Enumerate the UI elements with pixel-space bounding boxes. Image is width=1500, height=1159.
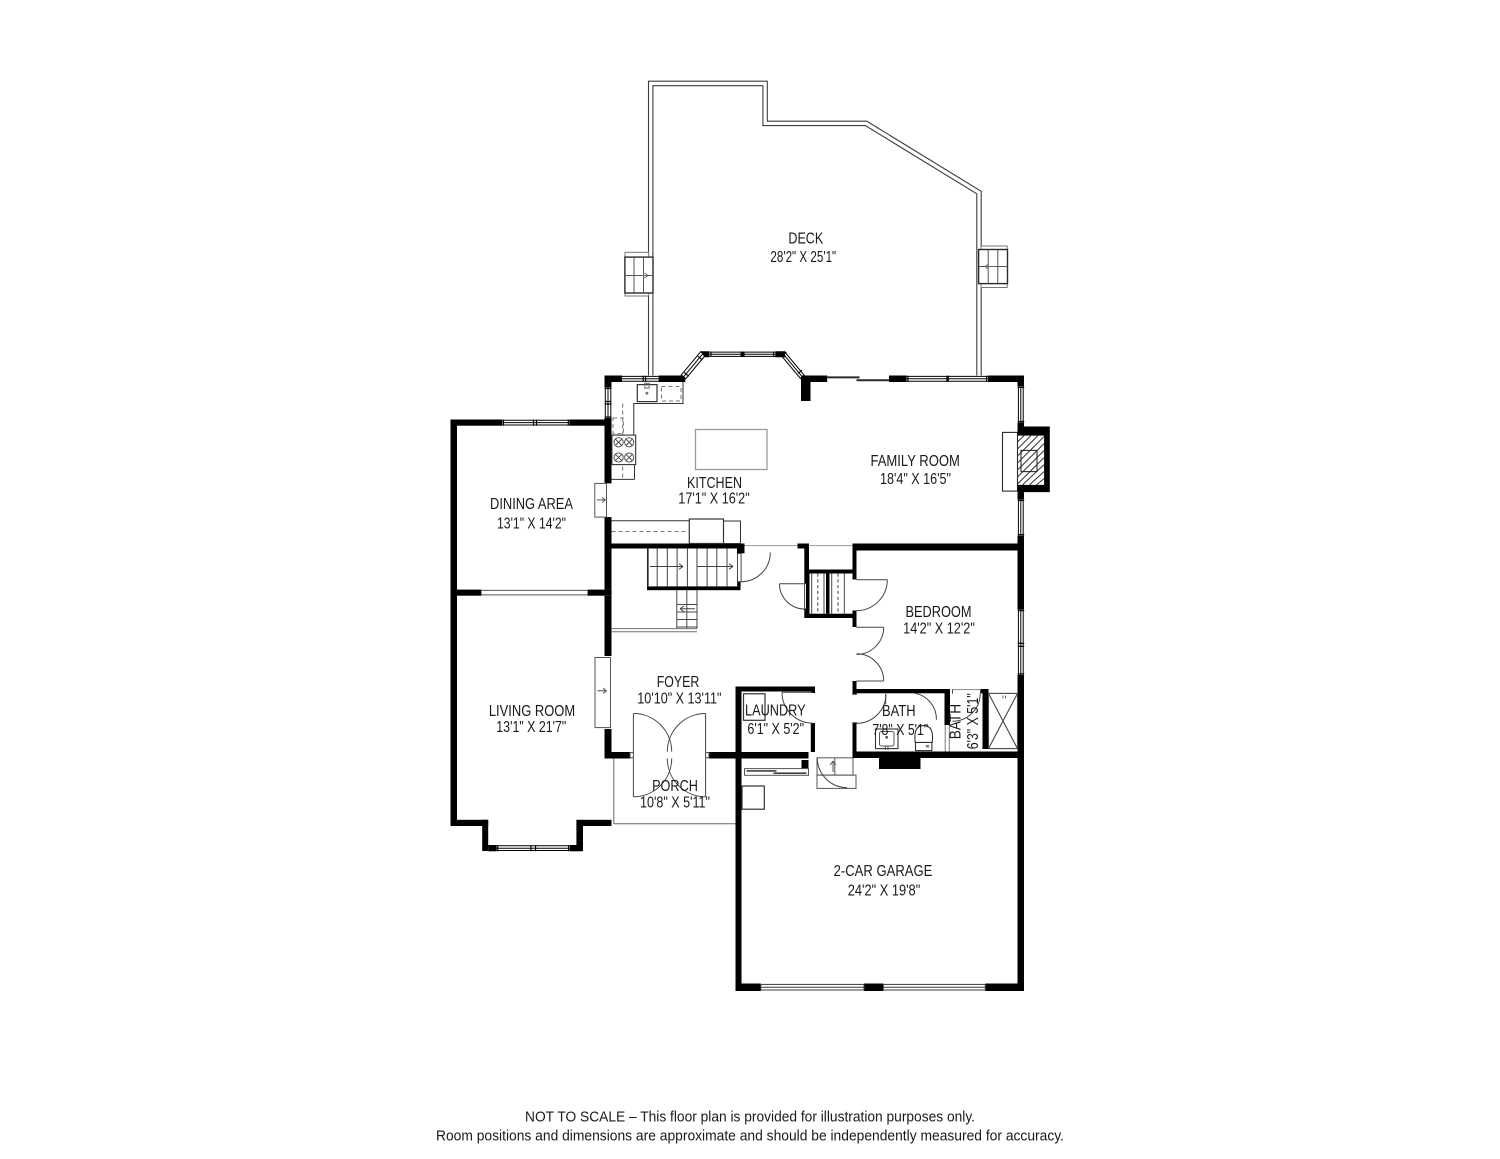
svg-text:PORCH: PORCH xyxy=(652,778,698,795)
svg-text:7'8" X 5'1": 7'8" X 5'1" xyxy=(872,722,928,739)
svg-text:14'2" X 12'2": 14'2" X 12'2" xyxy=(903,621,975,638)
svg-text:BATH: BATH xyxy=(948,704,965,739)
svg-text:FOYER: FOYER xyxy=(657,674,700,691)
svg-text:13'1" X 21'7": 13'1" X 21'7" xyxy=(496,719,566,736)
svg-text:BATH: BATH xyxy=(882,703,916,720)
svg-text:NOT TO SCALE – This floor plan: NOT TO SCALE – This floor plan is provid… xyxy=(525,1109,975,1126)
svg-text:18'4" X 16'5": 18'4" X 16'5" xyxy=(880,471,951,488)
svg-text:FAMILY ROOM: FAMILY ROOM xyxy=(870,453,960,470)
svg-text:13'1" X 14'2": 13'1" X 14'2" xyxy=(497,515,566,532)
svg-text:17'1" X 16'2": 17'1" X 16'2" xyxy=(678,491,749,508)
svg-text:10'8" X 5'11": 10'8" X 5'11" xyxy=(640,795,710,812)
svg-text:24'2" X 19'8": 24'2" X 19'8" xyxy=(848,882,921,899)
svg-text:2-CAR GARAGE: 2-CAR GARAGE xyxy=(834,863,933,880)
svg-text:DINING AREA: DINING AREA xyxy=(490,496,573,513)
svg-text:LAUNDRY: LAUNDRY xyxy=(745,703,806,720)
svg-text:KITCHEN: KITCHEN xyxy=(687,475,742,492)
svg-text:28'2" X 25'1": 28'2" X 25'1" xyxy=(770,249,836,266)
svg-text:DECK: DECK xyxy=(788,231,823,248)
svg-text:6'3" X 5'1": 6'3" X 5'1" xyxy=(965,693,982,749)
svg-text:LIVING ROOM: LIVING ROOM xyxy=(489,703,575,720)
svg-text:Room positions and dimensions: Room positions and dimensions are approx… xyxy=(436,1128,1064,1145)
svg-text:6'1" X 5'2": 6'1" X 5'2" xyxy=(747,721,804,738)
svg-text:10'10" X 13'11": 10'10" X 13'11" xyxy=(637,691,721,708)
svg-text:BEDROOM: BEDROOM xyxy=(906,604,972,621)
